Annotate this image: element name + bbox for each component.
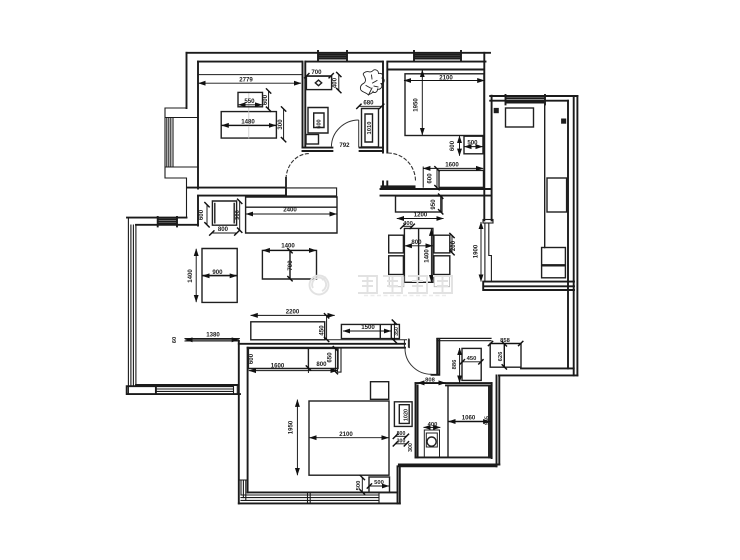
svg-text:1200: 1200 — [414, 212, 428, 219]
svg-text:60: 60 — [172, 337, 178, 343]
svg-text:1480: 1480 — [241, 118, 255, 125]
svg-text:550: 550 — [244, 98, 255, 105]
svg-text:600: 600 — [427, 173, 434, 184]
svg-text:900: 900 — [212, 269, 223, 276]
svg-text:700: 700 — [287, 260, 294, 271]
svg-text:886: 886 — [452, 359, 458, 369]
svg-text:350: 350 — [394, 327, 400, 336]
svg-text:600: 600 — [449, 140, 456, 151]
svg-text:950: 950 — [430, 199, 437, 210]
svg-text:700: 700 — [311, 69, 322, 76]
svg-text:1010: 1010 — [367, 122, 373, 135]
svg-text:680: 680 — [363, 99, 374, 106]
svg-text:1600: 1600 — [445, 162, 459, 169]
svg-text:2100: 2100 — [439, 75, 453, 82]
svg-text:2779: 2779 — [239, 76, 253, 83]
svg-text:1380: 1380 — [206, 332, 220, 339]
svg-text:800: 800 — [411, 239, 422, 246]
svg-text:626: 626 — [498, 351, 504, 361]
svg-text:500: 500 — [356, 481, 362, 491]
svg-text:450: 450 — [318, 325, 325, 336]
svg-text:800: 800 — [218, 226, 229, 233]
svg-text:400: 400 — [428, 422, 438, 428]
svg-text:1600: 1600 — [271, 363, 285, 370]
svg-text:650: 650 — [326, 352, 333, 363]
svg-text:900: 900 — [235, 210, 241, 220]
svg-text:600: 600 — [198, 209, 205, 220]
svg-text:600: 600 — [262, 94, 269, 105]
svg-text:1400: 1400 — [281, 243, 295, 250]
svg-text:450: 450 — [467, 356, 477, 362]
svg-text:300: 300 — [408, 443, 414, 452]
svg-text:400: 400 — [403, 221, 413, 227]
svg-text:1400: 1400 — [423, 249, 430, 263]
svg-text:858: 858 — [500, 338, 510, 344]
svg-text:2100: 2100 — [339, 431, 353, 438]
svg-text:500: 500 — [467, 139, 478, 146]
svg-text:200: 200 — [450, 240, 457, 251]
svg-text:955: 955 — [485, 416, 491, 425]
svg-text:600: 600 — [317, 119, 323, 128]
svg-text:2200: 2200 — [286, 309, 300, 316]
svg-text:1900: 1900 — [473, 244, 480, 258]
svg-text:2400: 2400 — [283, 207, 297, 214]
svg-text:808: 808 — [425, 377, 435, 383]
svg-text:1400: 1400 — [187, 269, 194, 283]
svg-text:792: 792 — [339, 142, 350, 149]
svg-text:300: 300 — [277, 119, 284, 130]
svg-text:400: 400 — [331, 77, 338, 88]
svg-text:800: 800 — [397, 431, 406, 437]
svg-text:1060: 1060 — [462, 415, 476, 422]
svg-text:500: 500 — [374, 480, 384, 486]
svg-text:1020: 1020 — [404, 409, 410, 421]
svg-text:1950: 1950 — [413, 98, 420, 112]
svg-text:300: 300 — [397, 438, 406, 444]
svg-text:1500: 1500 — [361, 324, 375, 331]
svg-text:600: 600 — [248, 353, 255, 364]
svg-text:1950: 1950 — [287, 420, 294, 434]
